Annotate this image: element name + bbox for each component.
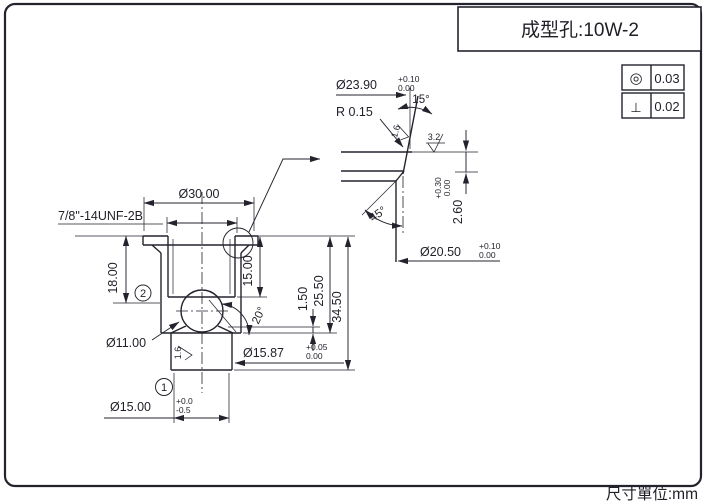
- roughness-face-icon: 3.2: [426, 132, 445, 152]
- roughness-face-text: 3.2: [428, 132, 441, 142]
- dim-angle-taper-text: 15°: [412, 94, 429, 106]
- dim-dia-tip-text: Ø15.00: [110, 400, 151, 414]
- dim-dia-tip: Ø15.00 +0.0 -0.5: [104, 373, 229, 423]
- dim-radius-text: R 0.15: [336, 105, 373, 119]
- dim-dia-mouth-tol-lower: 0.00: [398, 83, 415, 93]
- dim-depth-groove-text: 2.60: [451, 200, 465, 224]
- dim-34-50-text: 34.50: [330, 291, 344, 322]
- note-balloon-2-text: 2: [140, 288, 146, 300]
- detail-leader: [249, 159, 320, 232]
- roughness-shank-text: 1.6: [173, 347, 183, 360]
- dim-1-50-text: 1.50: [296, 287, 310, 311]
- dim-dia-flange-text: Ø30.00: [178, 187, 219, 201]
- note-balloon-1-text: 1: [161, 382, 167, 394]
- detail-outline: [341, 96, 478, 262]
- dim-dia-shank-text: Ø15.87: [243, 346, 284, 360]
- dim-depth-18-text: 18.00: [106, 262, 120, 293]
- dim-dia-groove-tol-lower: 0.00: [479, 250, 496, 260]
- tolerance-row-2-value: 0.02: [654, 99, 679, 114]
- roughness-taper-icon: 1.6: [389, 123, 411, 141]
- title-block-label: 成型孔:10W-2: [521, 19, 639, 41]
- dim-dia-mouth-text: Ø23.90: [336, 78, 377, 92]
- tolerance-table: ◎ 0.03 ⊥ 0.02: [622, 65, 684, 118]
- dim-thread: 7/8"-14UNF-2B: [58, 209, 237, 233]
- dim-dia-ball-text: Ø11.00: [106, 336, 146, 350]
- roughness-taper-text: 1.6: [389, 124, 402, 139]
- concentricity-icon: ◎: [629, 70, 642, 87]
- dim-dia-ball: Ø11.00: [106, 322, 179, 350]
- dim-angle-cone-text: 20°: [250, 305, 268, 326]
- dim-dia-flange: Ø30.00: [144, 187, 254, 231]
- cad-drawing: 成型孔:10W-2 ◎ 0.03 ⊥ 0.02: [0, 0, 707, 504]
- dim-dia-groove: Ø20.50 +0.10 0.00: [398, 241, 501, 261]
- drawing-sheet: 成型孔:10W-2 ◎ 0.03 ⊥ 0.02: [0, 0, 707, 504]
- dim-angle-chamfer-text: 45°: [368, 205, 389, 225]
- dim-dia-tip-tol-lower: -0.5: [176, 405, 191, 415]
- thread-callout-text: 7/8"-14UNF-2B: [58, 209, 143, 223]
- detail-balloon: [223, 228, 253, 258]
- roughness-shank-icon: 1.6: [173, 346, 192, 360]
- dim-depth-groove-tol-lower: 0.00: [442, 179, 452, 196]
- dim-depth-15-text: 15.00: [241, 255, 255, 286]
- dim-25-50-text: 25.50: [312, 275, 326, 306]
- dim-dia-shank-tol-lower: 0.00: [306, 351, 323, 361]
- note-balloon-2: 2: [135, 285, 151, 301]
- perpendicularity-icon: ⊥: [630, 100, 641, 115]
- units-note: 尺寸單位:mm: [606, 485, 698, 503]
- note-balloon-1: 1: [156, 379, 173, 396]
- dim-dia-shank: Ø15.87 +0.05 0.00: [235, 342, 344, 363]
- detail-view: Ø23.90 +0.10 0.00 15° R 0.15 1.6 3.2: [336, 74, 501, 262]
- main-view: Ø30.00 7/8"-14UNF-2B 18.00 15.00 1.50: [58, 159, 355, 423]
- title-block: 成型孔:10W-2: [458, 7, 701, 51]
- tolerance-row-1-value: 0.03: [654, 71, 679, 86]
- dim-dia-groove-text: Ø20.50: [420, 245, 461, 259]
- dim-angle-cone: 20°: [209, 300, 268, 335]
- dim-depth-18: 18.00: [75, 236, 160, 303]
- dim-25-50: 25.50: [312, 237, 330, 333]
